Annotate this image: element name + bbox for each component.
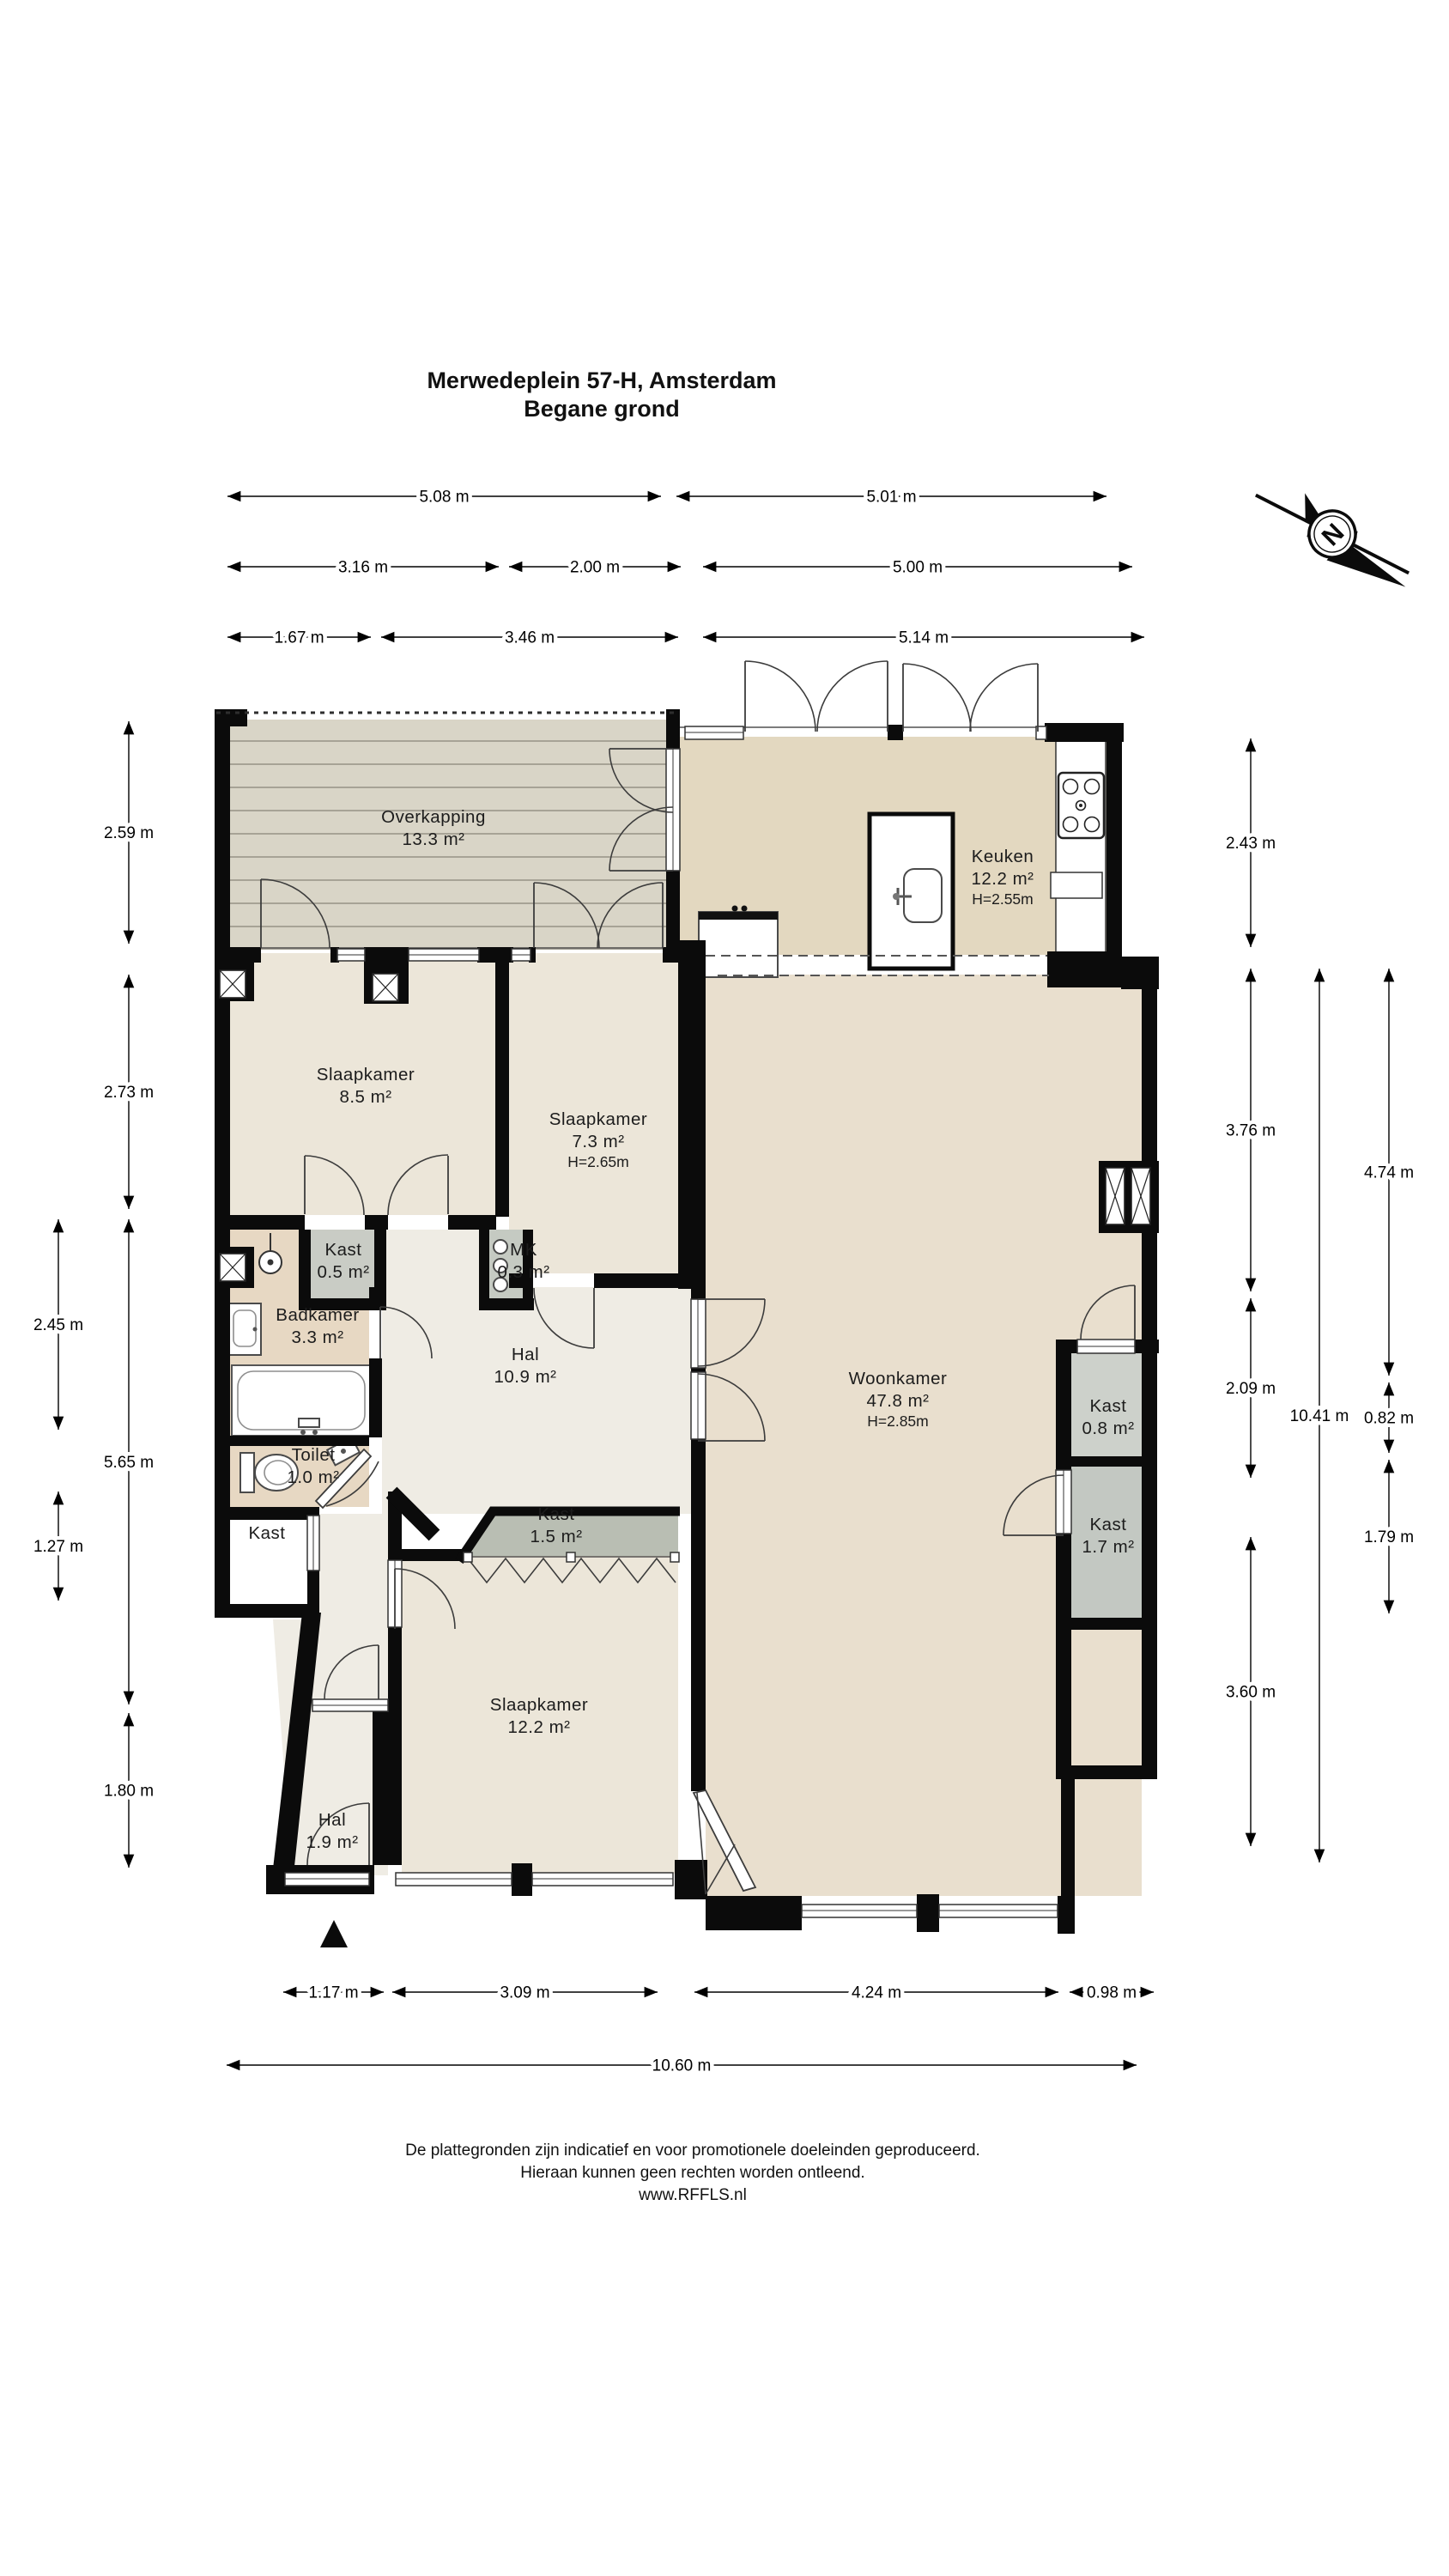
dimension: 2.73 m <box>104 975 154 1209</box>
room-name: Kast <box>248 1523 285 1543</box>
room-name: Slaapkamer <box>317 1065 415 1084</box>
dimension-label: 3.46 m <box>505 629 555 647</box>
room-area: 1.0 m² <box>287 1467 339 1487</box>
room-name: Badkamer <box>276 1305 359 1325</box>
kitchen-counter <box>699 906 778 978</box>
dimension-label: 5.14 m <box>899 629 949 647</box>
dimension: 0.82 m <box>1364 1382 1414 1453</box>
dimension-label: 10.60 m <box>652 2057 712 2075</box>
room-name: Kast <box>1089 1396 1126 1416</box>
footer-disclaimer-1: De plattegronden zijn indicatief en voor… <box>405 2142 980 2160</box>
dimension-label: 1.79 m <box>1364 1528 1414 1546</box>
room-area: 1.9 m² <box>306 1832 358 1852</box>
dimension: 2.59 m <box>104 721 154 944</box>
dimension-label: 3.60 m <box>1226 1684 1276 1702</box>
dimension-label: 1.17 m <box>308 1984 358 2002</box>
room-name: Keuken <box>972 847 1034 866</box>
room-area: 0.8 m² <box>1082 1419 1134 1438</box>
dimension: 1.79 m <box>1364 1460 1414 1613</box>
room-height: H=2.55m <box>972 890 1034 908</box>
dimension: 3.46 m <box>381 629 678 647</box>
dimension-label: 4.24 m <box>852 1984 901 2002</box>
dimension-label: 1.27 m <box>33 1538 83 1556</box>
dimension: 10.60 m <box>227 2057 1137 2075</box>
dimension-label: 5.01 m <box>866 489 916 507</box>
stove <box>1058 773 1104 838</box>
dimension-label: 2.09 m <box>1226 1380 1276 1398</box>
washbasin <box>228 1303 261 1355</box>
page-title: Merwedeplein 57-H, Amsterdam <box>427 368 776 393</box>
dimension: 10.41 m <box>1290 969 1349 1862</box>
floor-hal <box>382 1287 691 1514</box>
footer-website: www.RFFLS.nl <box>638 2186 747 2204</box>
shaft-icon <box>1131 1168 1150 1224</box>
shaft-icon <box>1106 1168 1125 1224</box>
dimension-label: 1.67 m <box>274 629 324 647</box>
shaft-icon <box>373 974 398 1001</box>
room-name: Overkapping <box>381 807 486 827</box>
room-area: 13.3 m² <box>403 829 465 849</box>
room-name: Hal <box>512 1345 539 1364</box>
dimension: 0.98 m <box>1070 1984 1154 2002</box>
room-name: Kast <box>537 1504 574 1524</box>
room-name: Woonkamer <box>849 1369 948 1388</box>
dimension: 5.08 m <box>227 489 661 507</box>
dimension-label: 3.76 m <box>1226 1122 1276 1140</box>
dimension: 2.43 m <box>1226 738 1276 947</box>
dimension-label: 5.65 m <box>104 1454 154 1472</box>
dimension: 1.80 m <box>104 1713 154 1868</box>
dimension: 5.01 m <box>676 489 1106 507</box>
dimension: 4.74 m <box>1364 969 1414 1376</box>
room-area: 0.5 m² <box>317 1262 369 1282</box>
room-area: 7.3 m² <box>572 1132 624 1151</box>
dimension: 2.00 m <box>509 559 681 577</box>
room-area: 1.5 m² <box>530 1527 582 1546</box>
dimension: 1.67 m <box>227 629 371 647</box>
room-name: Slaapkamer <box>490 1695 588 1715</box>
room-name: Kast <box>324 1240 361 1260</box>
dimension-label: 1.80 m <box>104 1783 154 1801</box>
floorplan-canvas: Merwedeplein 57-H, Amsterdam Begane gron… <box>0 0 1449 2576</box>
dimension-label: 2.00 m <box>570 559 620 577</box>
dimension: 5.00 m <box>703 559 1132 577</box>
dimension-label: 2.43 m <box>1226 835 1276 853</box>
room-name: Hal <box>318 1810 346 1830</box>
dimension-label: 0.82 m <box>1364 1410 1414 1428</box>
room-label-kast-links: Kast <box>248 1523 285 1543</box>
dimension: 5.65 m <box>104 1219 154 1704</box>
dimension: 4.24 m <box>694 1984 1058 2002</box>
dimension-label: 10.41 m <box>1290 1407 1349 1425</box>
room-area: 1.7 m² <box>1082 1537 1134 1557</box>
room-height: H=2.65m <box>567 1153 629 1170</box>
room-label-keuken: Keuken12.2 m²H=2.55m <box>972 847 1034 908</box>
room-area: 3.3 m² <box>291 1327 343 1347</box>
dimension: 3.76 m <box>1226 969 1276 1291</box>
dimension-label: 5.08 m <box>419 489 469 507</box>
dimension: 3.16 m <box>227 559 499 577</box>
dimension-label: 5.00 m <box>893 559 943 577</box>
room-area: 8.5 m² <box>339 1087 391 1107</box>
dimension: 5.14 m <box>703 629 1144 647</box>
footer-disclaimer-2: Hieraan kunnen geen rechten worden ontle… <box>520 2164 864 2182</box>
page-subtitle: Begane grond <box>524 396 680 422</box>
room-height: H=2.85m <box>867 1413 929 1430</box>
dimension-label: 4.74 m <box>1364 1164 1414 1182</box>
dimension-label: 3.16 m <box>338 559 388 577</box>
room-name: Toilet <box>292 1445 336 1465</box>
room-area: 12.2 m² <box>972 869 1034 889</box>
dimension: 1.27 m <box>33 1492 83 1601</box>
dimension-label: 3.09 m <box>500 1984 549 2002</box>
dimension: 2.45 m <box>33 1219 83 1430</box>
dimension: 3.09 m <box>392 1984 658 2002</box>
floorplan-page: Merwedeplein 57-H, Amsterdam Begane gron… <box>0 0 1449 2576</box>
room-area: 12.2 m² <box>508 1717 571 1737</box>
dimension-label: 2.45 m <box>33 1316 83 1334</box>
room-area: 47.8 m² <box>867 1391 930 1411</box>
north-arrow: N <box>1244 474 1422 598</box>
room-area: 10.9 m² <box>494 1367 557 1387</box>
dimension-label: 2.73 m <box>104 1084 154 1102</box>
room-name: MK <box>510 1240 537 1260</box>
shaft-icon <box>220 1254 246 1281</box>
dimension-label: 2.59 m <box>104 824 154 842</box>
kitchen-stove-counter <box>1051 740 1106 957</box>
dimension: 1.17 m <box>283 1984 384 2002</box>
room-name: Slaapkamer <box>549 1109 647 1129</box>
dimension: 2.09 m <box>1226 1298 1276 1478</box>
entrance-arrow <box>320 1920 348 1947</box>
dimension: 3.60 m <box>1226 1537 1276 1846</box>
kitchen-island <box>870 814 953 969</box>
dimension-label: 0.98 m <box>1087 1984 1137 2002</box>
room-name: Kast <box>1089 1515 1126 1534</box>
room-area: 0.3 m² <box>497 1262 549 1282</box>
bathtub <box>232 1365 371 1436</box>
shaft-icon <box>220 970 246 998</box>
